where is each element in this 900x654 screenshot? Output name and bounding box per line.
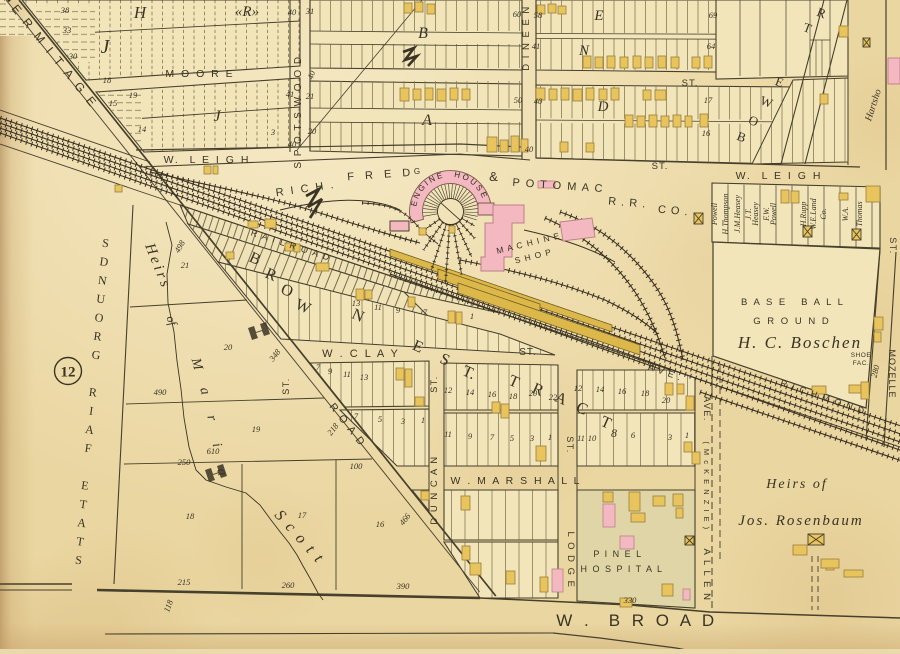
svg-text:20: 20 [529, 388, 538, 398]
svg-text:Co.: Co. [819, 208, 828, 219]
svg-text:40: 40 [288, 139, 297, 149]
svg-text:11: 11 [444, 429, 452, 439]
svg-text:41: 41 [532, 41, 541, 51]
svg-text:1: 1 [685, 430, 689, 440]
svg-text:18: 18 [103, 75, 112, 85]
svg-text:3: 3 [667, 432, 672, 442]
svg-text:21: 21 [306, 91, 315, 101]
svg-text:( M c K E N Z I E ): ( M c K E N Z I E ) [702, 441, 711, 530]
svg-text:21: 21 [181, 260, 190, 270]
svg-text:19: 19 [129, 90, 138, 100]
svg-text:E: E [593, 8, 603, 24]
svg-text:11: 11 [374, 302, 382, 312]
svg-text:J: J [213, 108, 221, 125]
svg-text:Heasey: Heasey [751, 202, 760, 227]
svg-text:AVE.: AVE. [702, 396, 712, 422]
svg-text:H.Rupp: H.Rupp [799, 202, 808, 228]
svg-text:1: 1 [548, 432, 552, 442]
svg-text:33: 33 [62, 25, 72, 35]
svg-text:5: 5 [378, 414, 382, 424]
svg-text:330: 330 [623, 595, 638, 605]
svg-text:P I N E L: P I N E L [593, 549, 642, 559]
svg-text:40: 40 [288, 7, 297, 17]
svg-text:17: 17 [298, 510, 307, 520]
svg-text:ST.: ST. [652, 161, 669, 172]
svg-text:18: 18 [509, 391, 518, 401]
svg-text:D I N E E N: D I N E E N [521, 5, 532, 71]
svg-text:1: 1 [421, 415, 425, 425]
svg-text:11: 11 [577, 433, 585, 443]
svg-text:ST.: ST. [565, 436, 575, 454]
svg-text:MOZELLE: MOZELLE [887, 349, 897, 398]
svg-text:20: 20 [662, 395, 671, 405]
svg-text:B A S E B A L L: B A S E B A L L [741, 297, 845, 308]
svg-text:Powell: Powell [710, 202, 719, 226]
svg-text:1: 1 [470, 311, 474, 321]
svg-text:G: G [414, 167, 420, 176]
svg-text:15: 15 [109, 98, 118, 108]
svg-text:40: 40 [525, 144, 534, 154]
svg-text:Jos. Rosenbaum: Jos. Rosenbaum [738, 513, 864, 529]
svg-text:250: 250 [178, 457, 192, 467]
svg-text:18: 18 [641, 388, 650, 398]
svg-text:A: A [421, 112, 432, 129]
svg-text:12: 12 [574, 383, 583, 393]
svg-text:38: 38 [60, 5, 70, 15]
svg-text:W . C L A Y: W . C L A Y [322, 348, 400, 360]
svg-text:41: 41 [286, 89, 295, 99]
svg-text:ST.: ST. [281, 377, 291, 395]
svg-text:17: 17 [704, 95, 713, 105]
svg-text:J: J [101, 36, 111, 58]
svg-text:ST.: ST. [888, 237, 898, 255]
svg-text:ST.: ST. [519, 347, 536, 358]
svg-text:G R O U N D: G R O U N D [753, 316, 830, 327]
svg-text:H O S P I T A L: H O S P I T A L [580, 564, 663, 574]
svg-text:20: 20 [224, 342, 233, 352]
svg-text:N: N [578, 43, 590, 59]
svg-text:16: 16 [618, 386, 627, 396]
svg-text:610: 610 [207, 446, 221, 456]
svg-text:14: 14 [138, 124, 147, 134]
svg-text:A L L E N: A L L E N [701, 549, 712, 602]
svg-text:64: 64 [707, 41, 716, 51]
svg-text:260: 260 [282, 580, 296, 590]
svg-text:S P O T S W O O D: S P O T S W O O D [293, 55, 304, 168]
svg-text:10: 10 [588, 433, 597, 443]
svg-text:H.Thompson: H.Thompson [721, 193, 730, 235]
svg-text:W. L E I G H: W. L E I G H [736, 170, 823, 182]
svg-text:69: 69 [709, 10, 718, 20]
svg-text:100: 100 [350, 461, 364, 471]
svg-text:Heirs of: Heirs of [765, 477, 828, 492]
svg-text:13: 13 [352, 298, 361, 308]
svg-text:W . M A R S H A L L: W . M A R S H A L L [451, 475, 582, 487]
svg-text:3: 3 [529, 433, 534, 443]
svg-text:14: 14 [596, 384, 605, 394]
svg-text:D U N C A N: D U N C A N [429, 455, 440, 524]
svg-text:Powell: Powell [769, 202, 778, 226]
svg-text:14: 14 [466, 387, 475, 397]
svg-text:W. L E I G H: W. L E I G H [164, 154, 251, 166]
svg-text:60: 60 [513, 9, 522, 19]
svg-text:J.M.Heasey: J.M.Heasey [733, 195, 742, 233]
svg-text:16: 16 [702, 128, 711, 138]
svg-text:215: 215 [178, 577, 191, 587]
svg-text:19: 19 [252, 424, 261, 434]
svg-text:ST.: ST. [429, 375, 439, 393]
svg-text:5: 5 [510, 433, 514, 443]
svg-text:W.E.Land: W.E.Land [809, 197, 818, 229]
svg-text:3: 3 [400, 416, 405, 426]
svg-text:H. C. Boschen: H. C. Boschen [737, 333, 862, 352]
svg-text:30: 30 [68, 51, 78, 61]
svg-text:W . B R O A D: W . B R O A D [556, 611, 717, 630]
svg-text:11: 11 [343, 369, 351, 379]
svg-text:H: H [133, 3, 148, 22]
svg-text:12: 12 [61, 365, 76, 381]
svg-text:&: & [489, 169, 501, 184]
svg-text:B: B [418, 25, 428, 42]
svg-text:8: 8 [611, 426, 617, 440]
svg-text:50: 50 [514, 95, 523, 105]
svg-text:«R»: «R» [235, 4, 259, 20]
svg-text:40: 40 [534, 96, 543, 106]
svg-text:W.A.: W.A. [841, 207, 850, 222]
svg-text:13: 13 [360, 372, 369, 382]
svg-text:D: D [597, 99, 609, 115]
svg-text:31: 31 [305, 6, 315, 16]
svg-text:16: 16 [488, 389, 497, 399]
svg-text:16: 16 [376, 519, 385, 529]
svg-text:L O D G E: L O D G E [565, 532, 576, 589]
svg-text:12: 12 [444, 385, 453, 395]
svg-text:22: 22 [549, 392, 558, 402]
svg-text:M O O R E: M O O R E [165, 68, 234, 80]
svg-text:18: 18 [186, 511, 195, 521]
svg-text:FAC.: FAC. [853, 360, 869, 367]
svg-text:58: 58 [534, 10, 543, 20]
svg-text:390: 390 [396, 581, 411, 591]
svg-text:Thomas: Thomas [855, 201, 864, 226]
svg-text:490: 490 [154, 387, 168, 397]
svg-text:3: 3 [270, 127, 275, 137]
svg-text:ST.: ST. [682, 78, 699, 89]
svg-text:SHOE: SHOE [851, 352, 872, 359]
svg-text:20: 20 [308, 126, 317, 136]
